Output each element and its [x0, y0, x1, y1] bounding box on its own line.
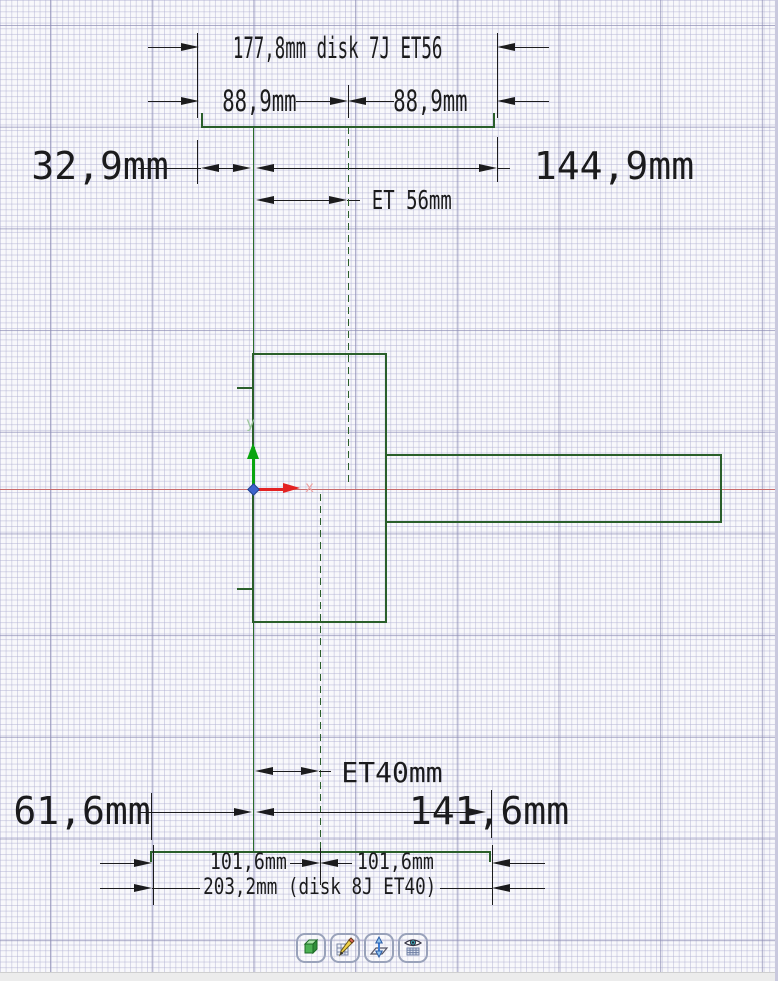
arrowhead-left — [320, 859, 338, 867]
arrowhead-left — [256, 164, 274, 172]
rim-flange — [201, 113, 203, 127]
shaft-outline — [387, 454, 722, 523]
dim-line — [138, 168, 201, 169]
dim-line — [148, 101, 181, 102]
extension-line — [497, 137, 498, 182]
dim-line — [140, 812, 234, 813]
rim-flange — [489, 852, 491, 862]
plane-normal-icon — [368, 936, 390, 961]
dim-line — [274, 168, 479, 169]
arrowhead-left — [348, 97, 366, 105]
dim-line — [319, 771, 331, 772]
sketch-edit-button[interactable] — [330, 933, 360, 963]
solid-view-button[interactable] — [296, 933, 326, 963]
y-axis-label: y — [246, 416, 255, 431]
y-axis-arrow-icon — [247, 443, 259, 459]
arrowhead-right — [302, 859, 320, 867]
arrowhead-right — [330, 97, 348, 105]
arrowhead-right — [468, 808, 486, 816]
dim-line — [100, 863, 134, 864]
arrowhead-right — [234, 808, 252, 816]
arrowhead-right — [181, 97, 199, 105]
cube-icon — [300, 936, 322, 961]
dim-line — [274, 200, 329, 201]
dim-line — [515, 47, 549, 48]
plane-normal-button[interactable] — [364, 933, 394, 963]
extension-line — [153, 845, 154, 905]
dim-line — [100, 888, 134, 889]
arrowhead-right — [134, 884, 152, 892]
dim-line — [148, 47, 181, 48]
arrowhead-left — [497, 43, 515, 51]
x-axis-label: x — [305, 480, 314, 495]
extension-line — [151, 793, 152, 840]
eye-table-icon — [402, 936, 424, 961]
dim-line — [296, 101, 330, 102]
dim-line — [510, 888, 545, 889]
sketch-pencil-icon — [334, 936, 356, 961]
dim-line — [273, 771, 301, 772]
dim-line — [497, 168, 510, 169]
hub-flange-tick — [237, 387, 253, 389]
arrowhead-right — [329, 196, 347, 204]
arrowhead-left — [201, 164, 219, 172]
dim-line — [515, 101, 549, 102]
hub-flange-tick — [237, 588, 253, 590]
arrowhead-right — [301, 767, 319, 775]
dim-line — [366, 101, 394, 102]
status-bar — [0, 972, 778, 981]
visibility-button[interactable] — [398, 933, 428, 963]
dim-line — [338, 863, 352, 864]
dim-line — [290, 863, 302, 864]
x-axis-arrow-icon — [283, 483, 300, 493]
arrowhead-right — [233, 164, 251, 172]
arrowhead-right — [479, 164, 497, 172]
rim-flange — [493, 113, 495, 127]
extension-line — [492, 845, 493, 905]
arrowhead-left — [492, 859, 510, 867]
arrowhead-left — [256, 808, 274, 816]
arrowhead-right — [181, 43, 199, 51]
extension-line — [197, 140, 198, 184]
drawing-canvas[interactable]: 177,8mm disk 7J ET56 88,9mm 88,9mm 32,9m… — [0, 0, 778, 981]
arrowhead-right — [134, 859, 152, 867]
arrowhead-left — [497, 97, 515, 105]
arrowhead-left — [256, 196, 274, 204]
dim-line — [510, 863, 545, 864]
arrowhead-left — [492, 884, 510, 892]
view-toolbar — [296, 933, 428, 963]
dim-line — [440, 888, 492, 889]
arrowhead-left — [255, 767, 273, 775]
dim-line — [219, 168, 233, 169]
dim-line — [152, 888, 200, 889]
